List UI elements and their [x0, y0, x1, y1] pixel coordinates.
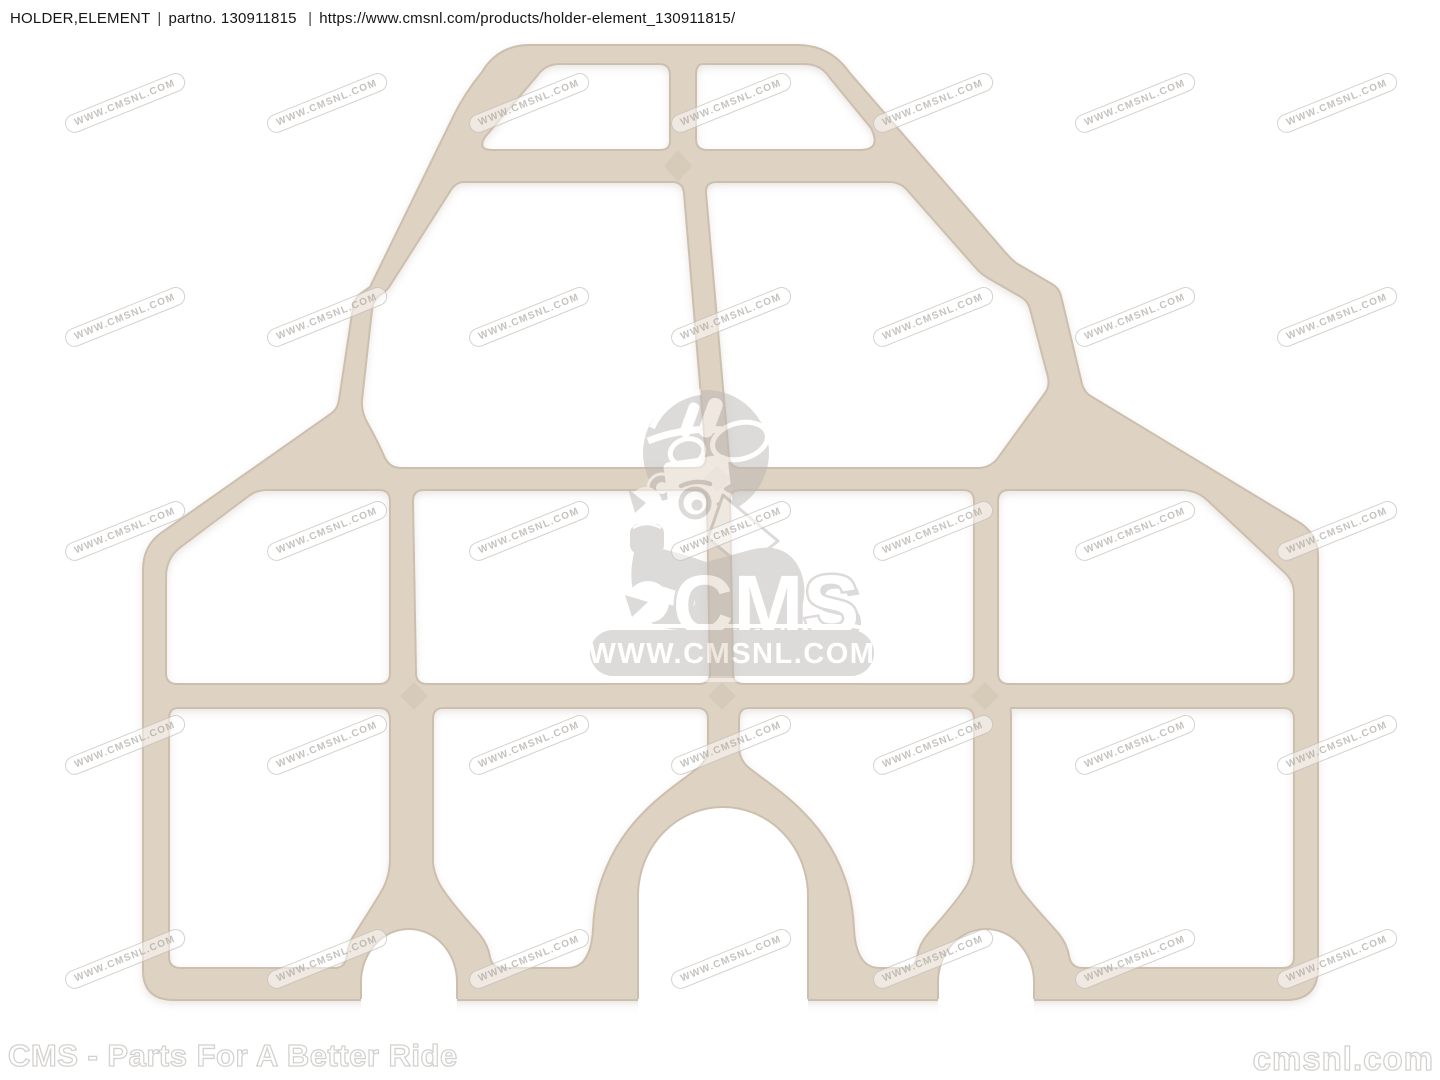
product-url: https://www.cmsnl.com/products/holder-el…: [319, 10, 735, 27]
logo-url-text: WWW.CMSNL.COM: [589, 638, 876, 670]
partno-label: partno.: [168, 10, 216, 27]
product-image-page: CMS CMS WWW.CMSNL.COM WWW.CMSNL.COMWWW.C…: [0, 0, 1440, 1080]
header-caption: HOLDER,ELEMENT|partno. 130911815 |https:…: [10, 10, 735, 27]
footer-slogan: CMS - Parts For A Better Ride: [8, 1038, 458, 1074]
footer-site-name: cmsnl.com: [1253, 1040, 1434, 1078]
part-name: HOLDER,ELEMENT: [10, 10, 150, 27]
cms-logo-watermark: CMS CMS WWW.CMSNL.COM: [0, 0, 1440, 1080]
part-number: 130911815: [221, 10, 297, 27]
divider: |: [157, 10, 161, 27]
divider: |: [308, 10, 312, 27]
